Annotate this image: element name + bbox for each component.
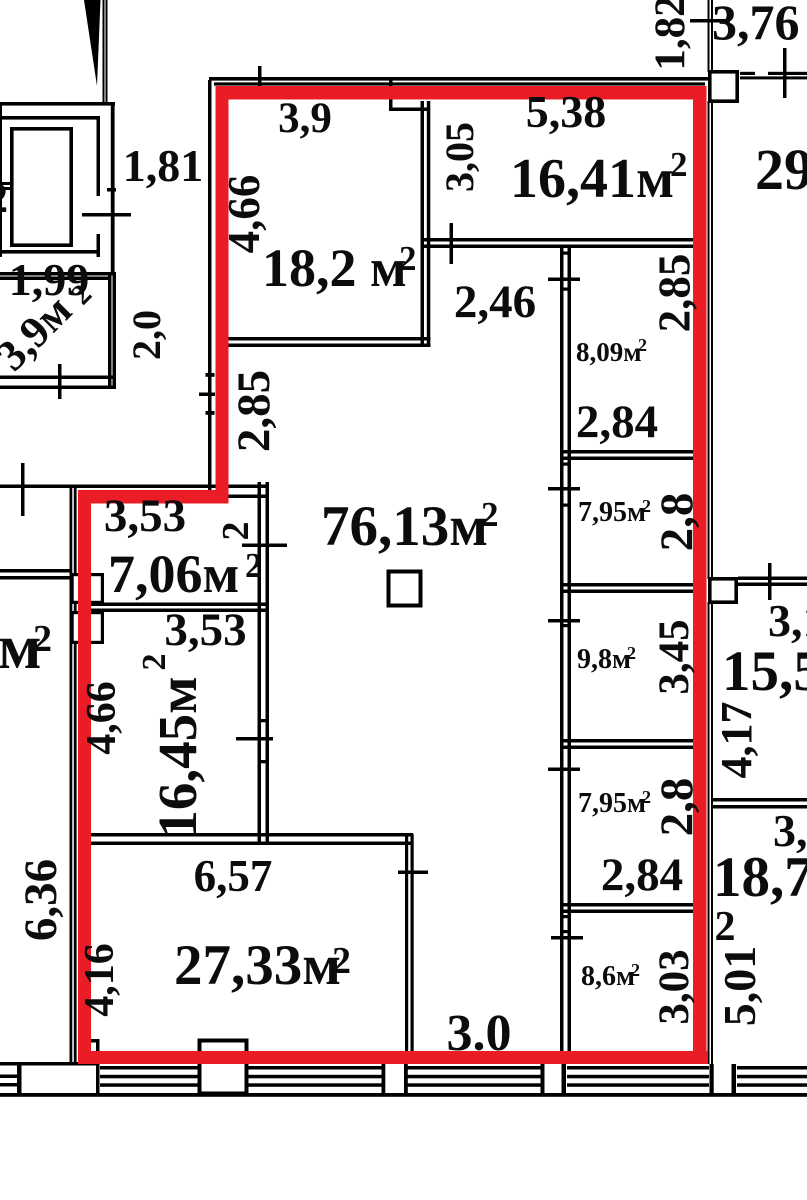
svg-text:9,8м: 9,8м <box>577 644 631 675</box>
svg-text:7,95м: 7,95м <box>578 497 646 528</box>
svg-text:6,57: 6,57 <box>194 851 273 901</box>
svg-text:15,56: 15,56 <box>722 640 807 703</box>
svg-text:2: 2 <box>136 654 173 671</box>
svg-text:16,45м: 16,45м <box>147 676 208 837</box>
svg-text:3.0: 3.0 <box>447 1005 512 1062</box>
svg-text:4,66: 4,66 <box>219 175 269 254</box>
svg-text:2: 2 <box>627 643 636 663</box>
svg-text:1,81: 1,81 <box>123 140 204 191</box>
svg-text:2,8: 2,8 <box>651 778 703 837</box>
svg-text:2: 2 <box>638 335 647 355</box>
svg-text:8,6м: 8,6м <box>581 961 635 992</box>
svg-text:2,0: 2,0 <box>124 310 169 360</box>
svg-text:2,85: 2,85 <box>650 254 700 333</box>
svg-text:2: 2 <box>715 904 736 950</box>
svg-text:2: 2 <box>642 496 651 516</box>
svg-text:3,7: 3,7 <box>773 805 807 856</box>
svg-text:29: 29 <box>755 137 807 202</box>
svg-text:16,41м: 16,41м <box>510 148 674 210</box>
svg-text:4,16: 4,16 <box>77 943 123 1017</box>
svg-text:5,01: 5,01 <box>714 946 765 1027</box>
svg-text:2: 2 <box>481 495 499 534</box>
svg-text:7,95м: 7,95м <box>578 788 646 819</box>
svg-text:3,53: 3,53 <box>164 604 246 656</box>
svg-text:4,17: 4,17 <box>712 702 761 779</box>
svg-text:2,85: 2,85 <box>228 370 280 452</box>
svg-text:2: 2 <box>215 522 257 541</box>
svg-text:7,06м: 7,06м <box>108 544 239 604</box>
svg-text:3,53: 3,53 <box>104 490 186 542</box>
svg-text:2: 2 <box>642 787 651 807</box>
svg-text:2: 2 <box>670 145 688 184</box>
svg-text:2: 2 <box>399 239 417 278</box>
svg-text:3,9: 3,9 <box>278 95 332 142</box>
svg-text:27,33м: 27,33м <box>174 934 341 997</box>
svg-text:3,1: 3,1 <box>768 595 807 646</box>
svg-text:2,84: 2,84 <box>576 396 658 448</box>
svg-text:18,2 м: 18,2 м <box>262 238 407 298</box>
svg-text:2: 2 <box>332 940 351 982</box>
svg-text:2: 2 <box>33 618 52 660</box>
svg-text:3,76: 3,76 <box>712 0 800 50</box>
svg-text:5,38: 5,38 <box>526 86 607 137</box>
svg-text:4,66: 4,66 <box>79 681 125 755</box>
svg-text:2,84: 2,84 <box>601 849 683 901</box>
svg-text:2: 2 <box>245 546 263 585</box>
svg-text:3,03: 3,03 <box>651 949 698 1024</box>
svg-text:2: 2 <box>0 176 8 222</box>
svg-text:2,8: 2,8 <box>651 493 703 552</box>
svg-text:8,09м: 8,09м <box>576 337 642 367</box>
svg-text:1,82: 1,82 <box>647 0 694 71</box>
svg-text:76,13м: 76,13м <box>321 495 488 558</box>
svg-text:2,46: 2,46 <box>454 276 536 328</box>
svg-text:2: 2 <box>631 960 640 980</box>
svg-text:3,05: 3,05 <box>437 122 482 192</box>
svg-text:3,45: 3,45 <box>651 619 698 694</box>
svg-text:6,36: 6,36 <box>15 859 67 941</box>
